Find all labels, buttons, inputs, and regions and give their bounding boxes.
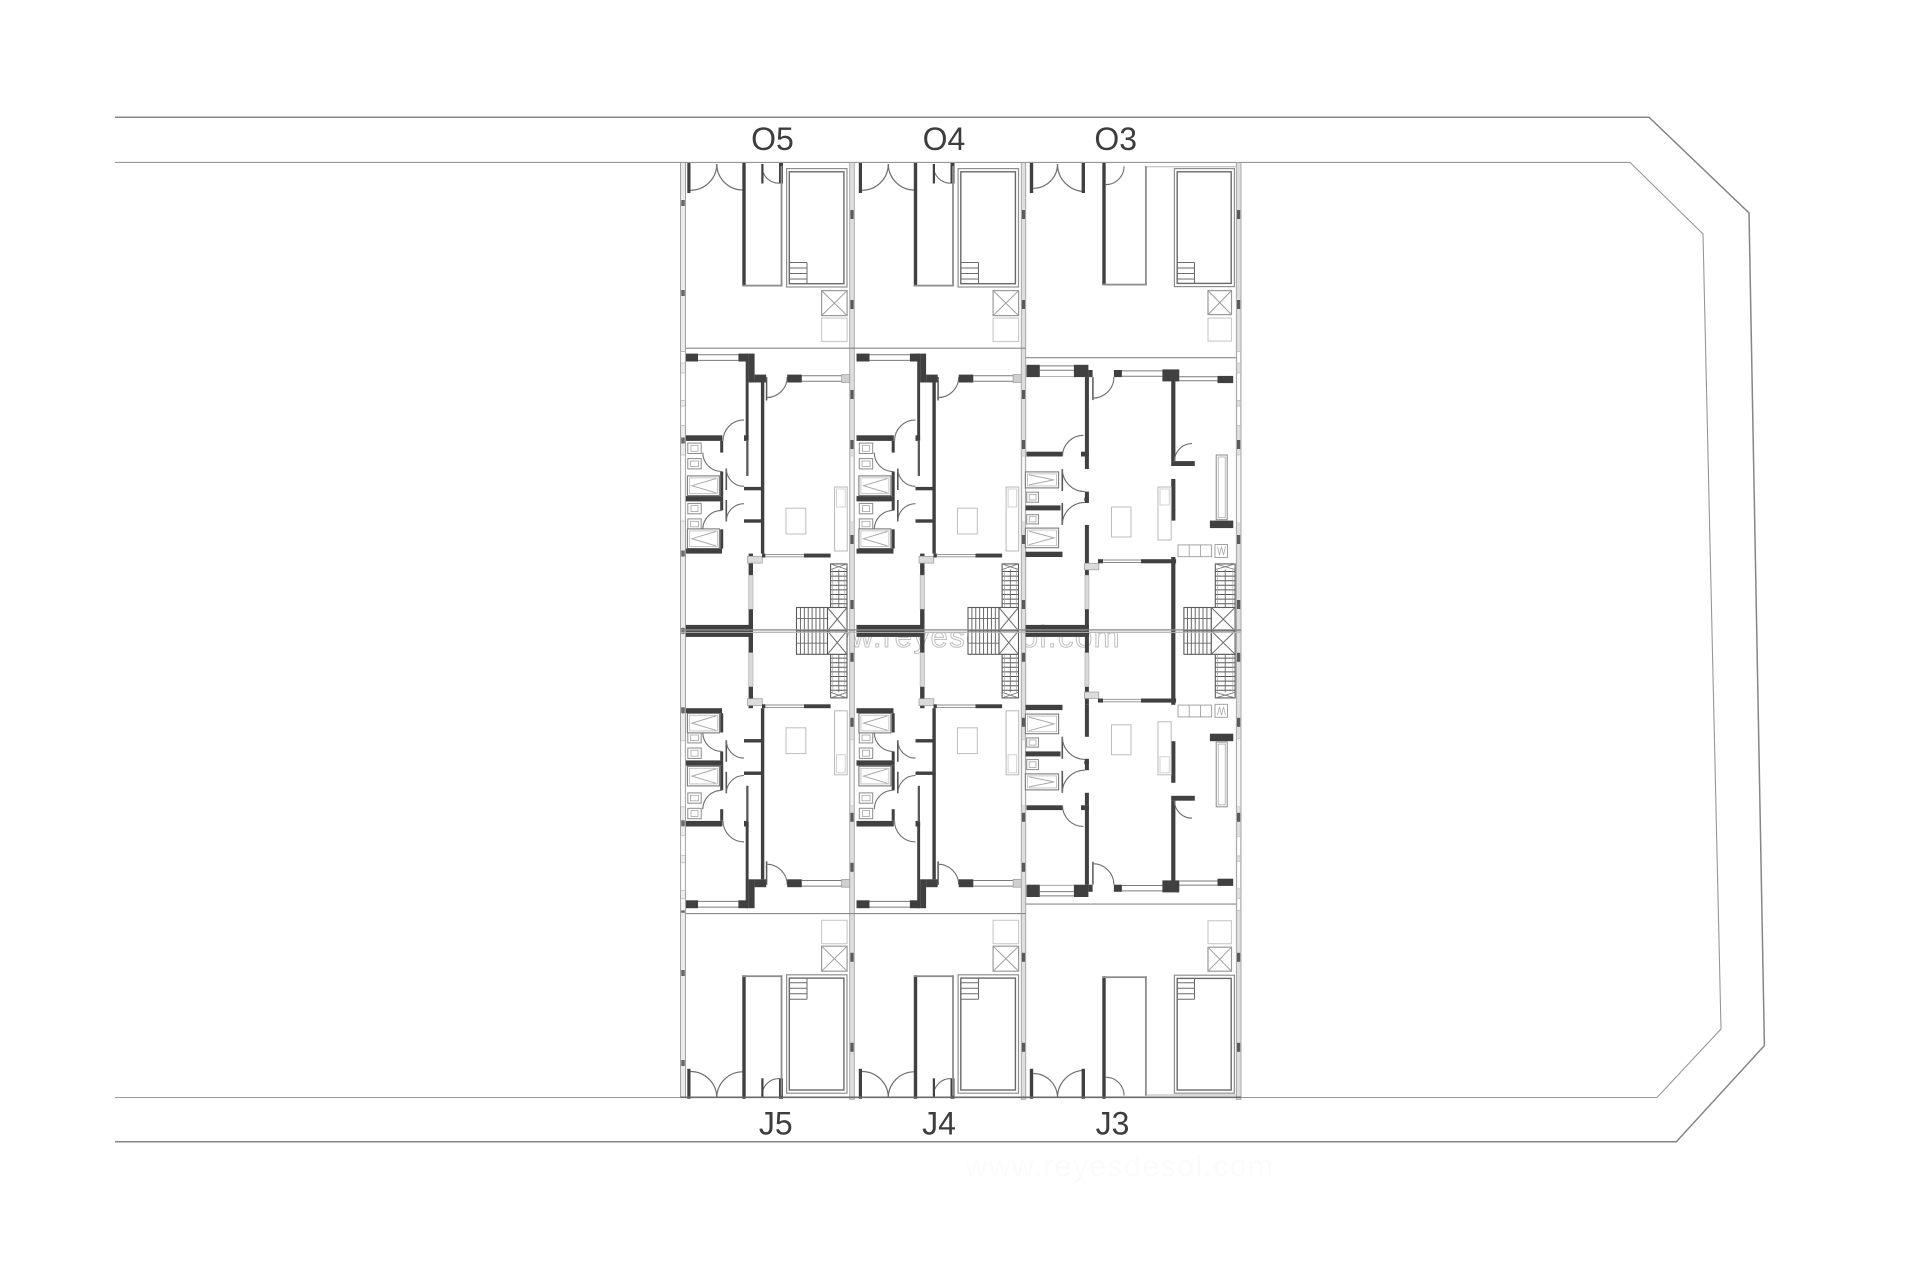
- svg-text:J3: J3: [1096, 1106, 1130, 1142]
- svg-text:O3: O3: [1094, 121, 1137, 157]
- svg-text:J4: J4: [922, 1106, 956, 1142]
- svg-text:O5: O5: [751, 121, 794, 157]
- svg-text:www.reyesdesol.com: www.reyesdesol.com: [965, 1150, 1275, 1183]
- svg-text:O4: O4: [923, 121, 966, 157]
- svg-text:J5: J5: [759, 1106, 793, 1142]
